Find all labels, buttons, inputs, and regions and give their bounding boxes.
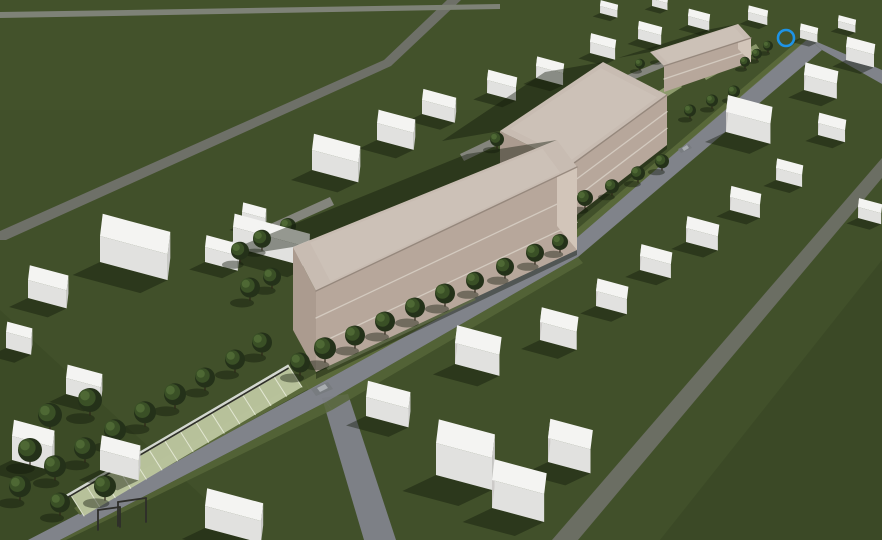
tree-canopy: [80, 391, 90, 401]
tree-canopy: [578, 192, 584, 198]
tree-canopy: [281, 220, 287, 226]
tree-canopy: [233, 244, 240, 251]
tree-canopy: [685, 106, 690, 111]
tree-canopy: [52, 495, 60, 503]
tree-canopy: [11, 478, 20, 487]
tree-canopy: [347, 328, 355, 336]
tree-canopy: [632, 168, 638, 174]
tree-canopy: [498, 260, 505, 267]
tree-canopy: [292, 355, 300, 363]
tree-canopy: [636, 60, 640, 64]
tree-canopy: [377, 314, 385, 322]
tree-canopy: [656, 156, 662, 162]
scene-svg: [0, 0, 882, 540]
tree-canopy: [20, 441, 30, 451]
tree-canopy: [764, 42, 768, 46]
tree-canopy: [491, 134, 497, 140]
tree-canopy: [707, 96, 712, 101]
tree-canopy: [729, 87, 734, 92]
tree-canopy: [468, 274, 475, 281]
tree-canopy: [136, 404, 145, 413]
tree-canopy: [606, 181, 612, 187]
tree-canopy: [407, 300, 415, 308]
tree-canopy: [46, 458, 55, 467]
tree-canopy: [528, 246, 535, 253]
tree-canopy: [242, 280, 250, 288]
tree-canopy: [106, 422, 115, 431]
tree-canopy: [255, 232, 262, 239]
tree-canopy: [76, 440, 85, 449]
tree-canopy: [40, 406, 50, 416]
tree-canopy: [753, 50, 757, 54]
tree-canopy: [197, 370, 205, 378]
tree-canopy: [741, 58, 745, 62]
tree-canopy: [316, 340, 325, 349]
rendering-viewport: [0, 0, 882, 540]
tree-canopy: [265, 270, 272, 277]
tree-canopy: [166, 386, 175, 395]
tree-canopy: [254, 335, 262, 343]
tree-canopy: [227, 352, 235, 360]
tree-canopy: [437, 286, 445, 294]
tree-canopy: [96, 478, 105, 487]
tree-canopy: [553, 236, 559, 242]
